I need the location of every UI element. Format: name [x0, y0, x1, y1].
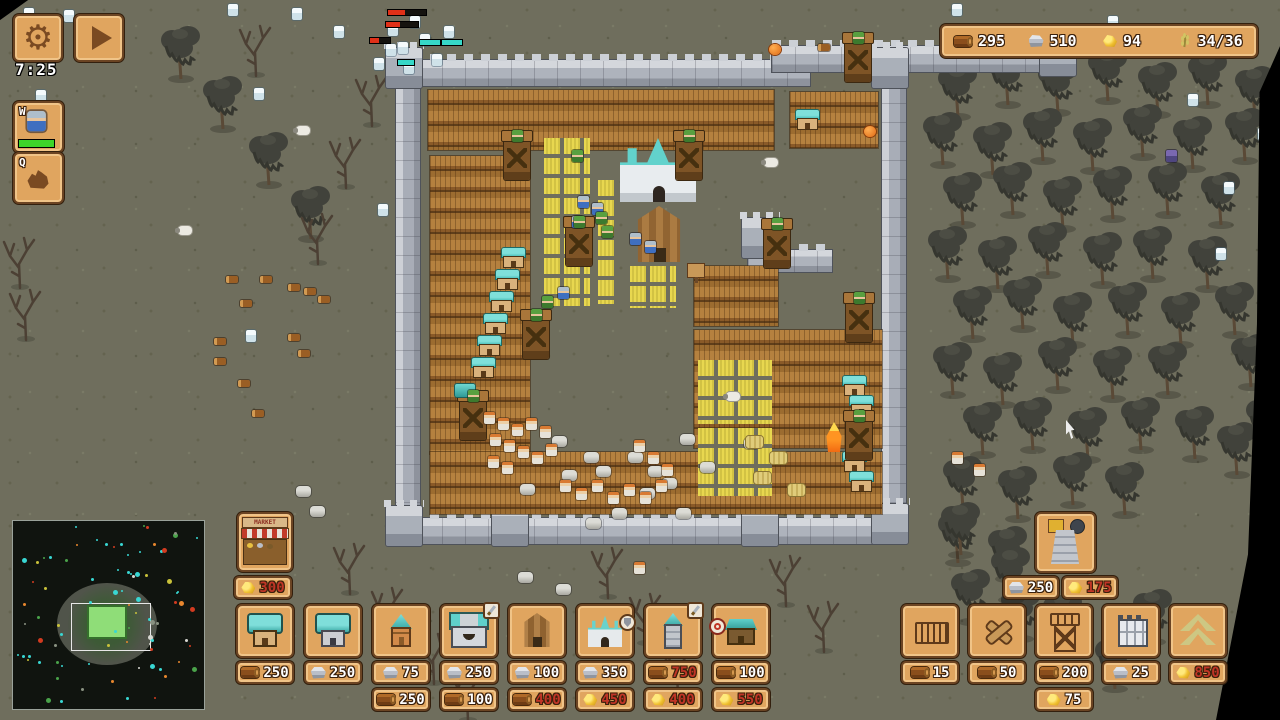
soldier-unit[interactable]: [558, 287, 569, 299]
minimap-blip: [135, 572, 140, 577]
cost-wood: 250: [372, 688, 430, 711]
gold-icon: [719, 694, 733, 706]
willow-tree: [1130, 222, 1176, 284]
villager-unit[interactable]: [518, 446, 529, 458]
build-house-wood-button[interactable]: [236, 604, 294, 658]
archer-unit[interactable]: [854, 292, 865, 304]
minimap-blip: [138, 667, 140, 669]
villager-unit[interactable]: [656, 480, 667, 492]
minimap-blip: [192, 667, 197, 672]
skeleton-enemy[interactable]: [254, 88, 264, 100]
wood-icon: [1040, 667, 1058, 678]
villager-unit[interactable]: [634, 440, 645, 452]
willow-tree: [960, 398, 1006, 460]
barn-icon: [518, 613, 556, 649]
house-building[interactable]: [845, 376, 864, 395]
ability-w-button[interactable]: W: [13, 101, 64, 153]
build-church-button[interactable]: [576, 604, 634, 658]
watchtower-icon: [1045, 613, 1083, 649]
dead-tree: [6, 284, 46, 342]
archer-unit[interactable]: [684, 130, 695, 142]
target-badge-icon: [709, 618, 726, 635]
ability-q-button[interactable]: Q: [13, 152, 64, 204]
tower-body-icon: [1051, 530, 1079, 564]
wood-log[interactable]: [260, 276, 272, 283]
stone-wall-tower[interactable]: [386, 506, 422, 546]
gold-icon: [1068, 582, 1082, 594]
cost-value: 50: [1000, 666, 1017, 680]
skeleton-enemy[interactable]: [292, 8, 302, 20]
cost-wood: 400: [508, 688, 566, 711]
willow-tree: [930, 338, 976, 400]
minimap-blip: [57, 624, 60, 627]
cost-stone: 250: [304, 661, 362, 684]
willow-tree: [995, 462, 1041, 524]
villager-unit[interactable]: [662, 464, 673, 476]
stone-resource[interactable]: [518, 572, 533, 583]
hay-pile[interactable]: [788, 484, 805, 496]
skeleton-enemy[interactable]: [246, 330, 256, 342]
cost-value: 25: [1132, 666, 1149, 680]
stone-resource[interactable]: [680, 434, 695, 445]
cost-stone: 250: [1003, 576, 1059, 599]
minimap-blip: [43, 557, 45, 559]
stone-resource[interactable]: [556, 584, 571, 595]
stone-resource[interactable]: [612, 508, 627, 519]
wood-log[interactable]: [240, 300, 252, 307]
cost-value: 550: [737, 693, 762, 707]
skeleton-enemy[interactable]: [432, 54, 442, 66]
villager-unit[interactable]: [540, 426, 551, 438]
skeleton-enemy[interactable]: [1216, 248, 1226, 260]
cost-value: 100: [534, 666, 559, 680]
cost-value: 250: [466, 666, 491, 680]
sheep[interactable]: [764, 158, 778, 167]
ability-key-label: W: [19, 105, 26, 118]
minimap-blip: [126, 641, 128, 643]
stone-resource[interactable]: [676, 508, 691, 519]
wood-log[interactable]: [818, 44, 830, 51]
archer-unit[interactable]: [572, 150, 583, 162]
game-timer: 7:25: [15, 60, 58, 79]
play-pause-button[interactable]: [74, 14, 124, 62]
minimap-blip: [167, 579, 172, 584]
dead-tree: [588, 542, 628, 600]
cost-value: 175: [1086, 581, 1111, 595]
cost-wood: 100: [712, 661, 770, 684]
skeleton-enemy[interactable]: [374, 58, 384, 70]
sheep[interactable]: [296, 126, 310, 135]
minimap-blip: [150, 664, 155, 669]
stone-icon: [1113, 667, 1128, 679]
cost-gold: 550: [712, 688, 770, 711]
build-market-button[interactable]: MARKET: [237, 512, 293, 572]
build-barn-button[interactable]: [508, 604, 566, 658]
minimap-blip: [17, 654, 19, 656]
archer-unit[interactable]: [854, 410, 865, 422]
wood-log[interactable]: [252, 410, 264, 417]
resource-gold: 94: [1103, 32, 1170, 50]
minimap-blip: [146, 526, 149, 529]
villager-unit[interactable]: [512, 424, 523, 436]
willow-tree: [158, 22, 204, 84]
wood-log[interactable]: [226, 276, 238, 283]
market-sign-label: MARKET: [243, 518, 287, 527]
gold-icon: [241, 582, 255, 594]
wood-log[interactable]: [298, 350, 310, 357]
minimap-blip: [127, 554, 129, 556]
stone-icon: [311, 667, 326, 679]
stone-wall[interactable]: [396, 60, 810, 86]
stone-resource[interactable]: [586, 518, 601, 529]
minimap-blip: [76, 544, 78, 546]
archer-unit[interactable]: [531, 309, 542, 321]
house-building[interactable]: [498, 270, 517, 289]
minimap-blip: [75, 526, 77, 528]
minimap-blip: [88, 663, 90, 665]
build-house-stone-button[interactable]: [304, 604, 362, 658]
ability-key-label: Q: [19, 156, 26, 169]
wood-icon: [377, 694, 395, 705]
minimap-blip: [114, 630, 117, 633]
archer-unit[interactable]: [468, 390, 479, 402]
villager-unit[interactable]: [504, 440, 515, 452]
cost-value: 250: [399, 693, 424, 707]
gold-icon: [1176, 667, 1190, 679]
house-building[interactable]: [504, 248, 523, 267]
villager-unit[interactable]: [532, 452, 543, 464]
stone-resource[interactable]: [310, 506, 325, 517]
villager-unit[interactable]: [498, 418, 509, 430]
minimap-blip: [65, 559, 68, 562]
cost-value: 250: [263, 666, 288, 680]
shield-badge-icon: [619, 614, 636, 631]
skeleton-enemy[interactable]: [334, 26, 344, 38]
wood-log[interactable]: [214, 338, 226, 345]
wall-icon: [1112, 613, 1150, 649]
minimap-blip: [120, 543, 123, 546]
villager-unit[interactable]: [952, 452, 963, 464]
cost-value: 450: [601, 693, 626, 707]
skeleton-enemy[interactable]: [386, 44, 396, 56]
wood-icon: [717, 667, 735, 678]
willow-tree: [1120, 100, 1166, 162]
wood-log[interactable]: [214, 358, 226, 365]
cost-gold: 175: [1062, 576, 1118, 599]
build-fence-button[interactable]: [901, 604, 959, 658]
resource-gold-value: 94: [1123, 32, 1141, 50]
cost-value: 400: [535, 693, 560, 707]
gold-icon: [651, 694, 665, 706]
minimap-blip: [22, 558, 27, 563]
minimap-blip: [126, 697, 129, 700]
skeleton-enemy[interactable]: [1258, 128, 1268, 140]
dead-tree: [330, 538, 370, 596]
villager-unit[interactable]: [576, 488, 587, 500]
wooden-fence[interactable]: [694, 266, 778, 326]
hay-pile[interactable]: [770, 452, 787, 464]
willow-tree: [1145, 338, 1191, 400]
archer-unit[interactable]: [542, 296, 553, 308]
resource-stone-value: 510: [1050, 32, 1077, 50]
wood-icon: [241, 667, 259, 678]
sheep[interactable]: [726, 392, 740, 401]
minimap-blip: [159, 668, 162, 671]
wood-icon: [954, 36, 972, 47]
dead-tree: [236, 20, 276, 78]
house-building[interactable]: [852, 472, 871, 491]
skeleton-enemy[interactable]: [64, 10, 74, 22]
stone-resource[interactable]: [296, 486, 311, 497]
minimap-blip: [179, 601, 184, 606]
stone-icon: [1009, 582, 1024, 594]
soldier-unit[interactable]: [645, 241, 656, 253]
minimap-blip: [60, 700, 63, 703]
minimap-blip: [176, 592, 178, 594]
market-awning-icon: [242, 529, 288, 538]
cost-value: 750: [671, 666, 696, 680]
build-castle-button[interactable]: [440, 604, 498, 658]
minimap-blip: [96, 539, 98, 541]
wood-icon: [649, 667, 667, 678]
minimap-blip: [24, 623, 26, 625]
stone-wall[interactable]: [882, 70, 906, 522]
villager-unit[interactable]: [484, 412, 495, 424]
skeleton-enemy[interactable]: [1224, 182, 1234, 194]
stone-resource[interactable]: [584, 452, 599, 463]
game-viewport[interactable]: ⚙ 7:25 W Q 2955109434/36 MARKET 25025075…: [0, 0, 1280, 720]
minimap-blip: [49, 556, 52, 559]
stone-icon: [383, 667, 398, 679]
skeleton-enemy[interactable]: [952, 4, 962, 16]
upgrade-icon: [1179, 613, 1217, 649]
villager-unit[interactable]: [624, 484, 635, 496]
dead-tree: [766, 550, 806, 608]
dead-tree: [804, 596, 844, 654]
minimap-blip: [164, 675, 167, 678]
house-building[interactable]: [486, 314, 505, 333]
house-stone-icon: [314, 613, 352, 649]
cost-wood: 50: [968, 661, 1026, 684]
wood-icon: [911, 667, 929, 678]
willow-tree: [1020, 104, 1066, 166]
spikes-icon: [978, 613, 1016, 649]
minimap-blip: [91, 578, 94, 581]
minimap-blip: [27, 659, 29, 661]
stone-resource[interactable]: [648, 466, 663, 477]
sword-badge-icon: [687, 602, 704, 619]
wooden-fence[interactable]: [428, 90, 774, 150]
villager-unit[interactable]: [546, 444, 557, 456]
cost-value: 15: [933, 666, 950, 680]
villager-unit[interactable]: [490, 434, 501, 446]
cost-value: 200: [1062, 666, 1087, 680]
pumpkin-enemy[interactable]: [769, 44, 781, 55]
stone-wall[interactable]: [396, 60, 420, 522]
house-building[interactable]: [474, 358, 493, 377]
minimap-blip: [156, 622, 159, 625]
hay-pile[interactable]: [754, 472, 771, 484]
archer-unit[interactable]: [602, 226, 613, 238]
pumpkin-enemy[interactable]: [864, 126, 876, 137]
food-icon: [1178, 34, 1192, 48]
minimap-blip: [174, 601, 177, 604]
wood-log[interactable]: [288, 284, 300, 291]
skeleton-enemy[interactable]: [1188, 94, 1198, 106]
skeleton-enemy[interactable]: [378, 204, 388, 216]
cost-stone: 25: [1102, 661, 1160, 684]
wood-log[interactable]: [238, 380, 250, 387]
archer-unit[interactable]: [596, 212, 607, 224]
archer-unit[interactable]: [574, 216, 585, 228]
cost-stone: 250: [440, 661, 498, 684]
minimap-blip: [178, 661, 180, 663]
minimap-blip: [150, 648, 153, 651]
stone-icon: [583, 667, 598, 679]
house-wood-icon: [246, 613, 284, 649]
minimap-blip: [162, 548, 167, 553]
stone-icon: [447, 667, 462, 679]
cost-value: 100: [739, 666, 764, 680]
cost-value: 350: [602, 666, 627, 680]
hooded-enemy[interactable]: [1166, 150, 1177, 162]
stone-resource[interactable]: [596, 466, 611, 477]
cost-gold: 450: [576, 688, 634, 711]
sword-badge-icon: [483, 602, 500, 619]
wooden-sign[interactable]: [688, 264, 704, 277]
minimap-blip: [56, 661, 59, 664]
willow-tree: [1102, 458, 1148, 520]
minimap-blip: [38, 661, 41, 664]
cost-stone: 75: [372, 661, 430, 684]
willow-tree: [938, 498, 984, 560]
stone-resource[interactable]: [520, 484, 535, 495]
minimap-blip: [154, 697, 156, 699]
willow-tree: [246, 128, 292, 190]
villager-unit[interactable]: [640, 492, 651, 504]
villager-unit[interactable]: [526, 418, 537, 430]
minimap-blip: [189, 645, 191, 647]
minimap-blip: [117, 569, 119, 571]
stone-resource[interactable]: [700, 462, 715, 473]
build-hut-button[interactable]: [712, 604, 770, 658]
hay-pile[interactable]: [746, 436, 763, 448]
dead-tree: [326, 132, 366, 190]
cost-gold: 400: [644, 688, 702, 711]
villager-unit[interactable]: [592, 480, 603, 492]
minimap-blip: [196, 537, 198, 539]
cost-wood: 200: [1035, 661, 1093, 684]
minimap-blip: [36, 561, 39, 564]
minimap-blip: [23, 603, 26, 606]
minimap-blip: [177, 591, 179, 593]
stone-resource[interactable]: [628, 452, 643, 463]
house-building[interactable]: [798, 110, 817, 129]
castle-icon: [450, 613, 488, 649]
build-wall-button[interactable]: [1102, 604, 1160, 658]
villager-unit[interactable]: [634, 562, 645, 574]
villager-unit[interactable]: [502, 462, 513, 474]
gold-icon: [583, 694, 597, 706]
wood-log[interactable]: [318, 296, 330, 303]
resource-food-value: 34/36: [1198, 32, 1243, 50]
cost-value: 400: [669, 693, 694, 707]
house-building[interactable]: [492, 292, 511, 311]
church-icon: [586, 613, 624, 649]
wood-log[interactable]: [304, 288, 316, 295]
ally-health-bar: [442, 40, 462, 45]
skeleton-enemy[interactable]: [444, 26, 454, 38]
hero-icon: [27, 111, 46, 131]
willow-tree: [1105, 278, 1151, 340]
resource-wood-value: 295: [978, 32, 1005, 50]
villager-unit[interactable]: [974, 464, 985, 476]
house-building[interactable]: [480, 336, 499, 355]
build-spire-button[interactable]: [644, 604, 702, 658]
villager-unit[interactable]: [488, 456, 499, 468]
willow-tree: [940, 168, 986, 230]
sheep[interactable]: [178, 226, 192, 235]
gold-icon: [1103, 35, 1117, 47]
minimap-blip: [37, 616, 40, 619]
minimap-blip: [135, 612, 137, 614]
villager-unit[interactable]: [560, 480, 571, 492]
willow-tree: [1025, 218, 1071, 280]
minimap-blip: [153, 543, 156, 546]
willow-tree: [1214, 418, 1260, 480]
skeleton-enemy[interactable]: [228, 4, 238, 16]
fence-icon: [911, 613, 949, 649]
soldier-unit[interactable]: [578, 196, 589, 208]
minimap-blip: [113, 546, 115, 548]
wood-log[interactable]: [288, 334, 300, 341]
willow-tree: [950, 282, 996, 344]
willow-tree: [920, 108, 966, 170]
settings-button[interactable]: ⚙: [13, 14, 63, 62]
archer-unit[interactable]: [512, 130, 523, 142]
stone-wall[interactable]: [396, 518, 906, 544]
ally-health-bar: [420, 40, 440, 45]
build-upgrade-button[interactable]: [1169, 604, 1227, 658]
build-cannon-tower-button[interactable]: [1035, 512, 1096, 573]
wheat-farm[interactable]: [630, 266, 676, 308]
wheat-farm[interactable]: [598, 180, 618, 304]
archer-unit[interactable]: [772, 218, 783, 230]
hero-health-bar: [19, 140, 54, 147]
dead-tree: [0, 232, 40, 290]
build-spikes-button[interactable]: [968, 604, 1026, 658]
minimap[interactable]: [12, 520, 205, 710]
build-watchtower-button[interactable]: [1035, 604, 1093, 658]
minimap-blip: [190, 607, 195, 612]
willow-tree: [1145, 158, 1191, 220]
skeleton-enemy[interactable]: [398, 42, 408, 54]
stone-wall-tower[interactable]: [872, 48, 908, 88]
willow-tree: [1000, 272, 1046, 334]
villager-unit[interactable]: [608, 492, 619, 504]
villager-unit[interactable]: [648, 452, 659, 464]
minimap-blip: [139, 551, 141, 553]
willow-tree: [1198, 168, 1244, 230]
minimap-blip: [111, 680, 114, 683]
soldier-unit[interactable]: [630, 233, 641, 245]
archer-unit[interactable]: [853, 32, 864, 44]
willow-tree: [1172, 402, 1218, 464]
willow-tree: [1118, 393, 1164, 455]
stone-icon: [515, 667, 530, 679]
cost-value: 75: [402, 666, 419, 680]
build-house-small-button[interactable]: [372, 604, 430, 658]
